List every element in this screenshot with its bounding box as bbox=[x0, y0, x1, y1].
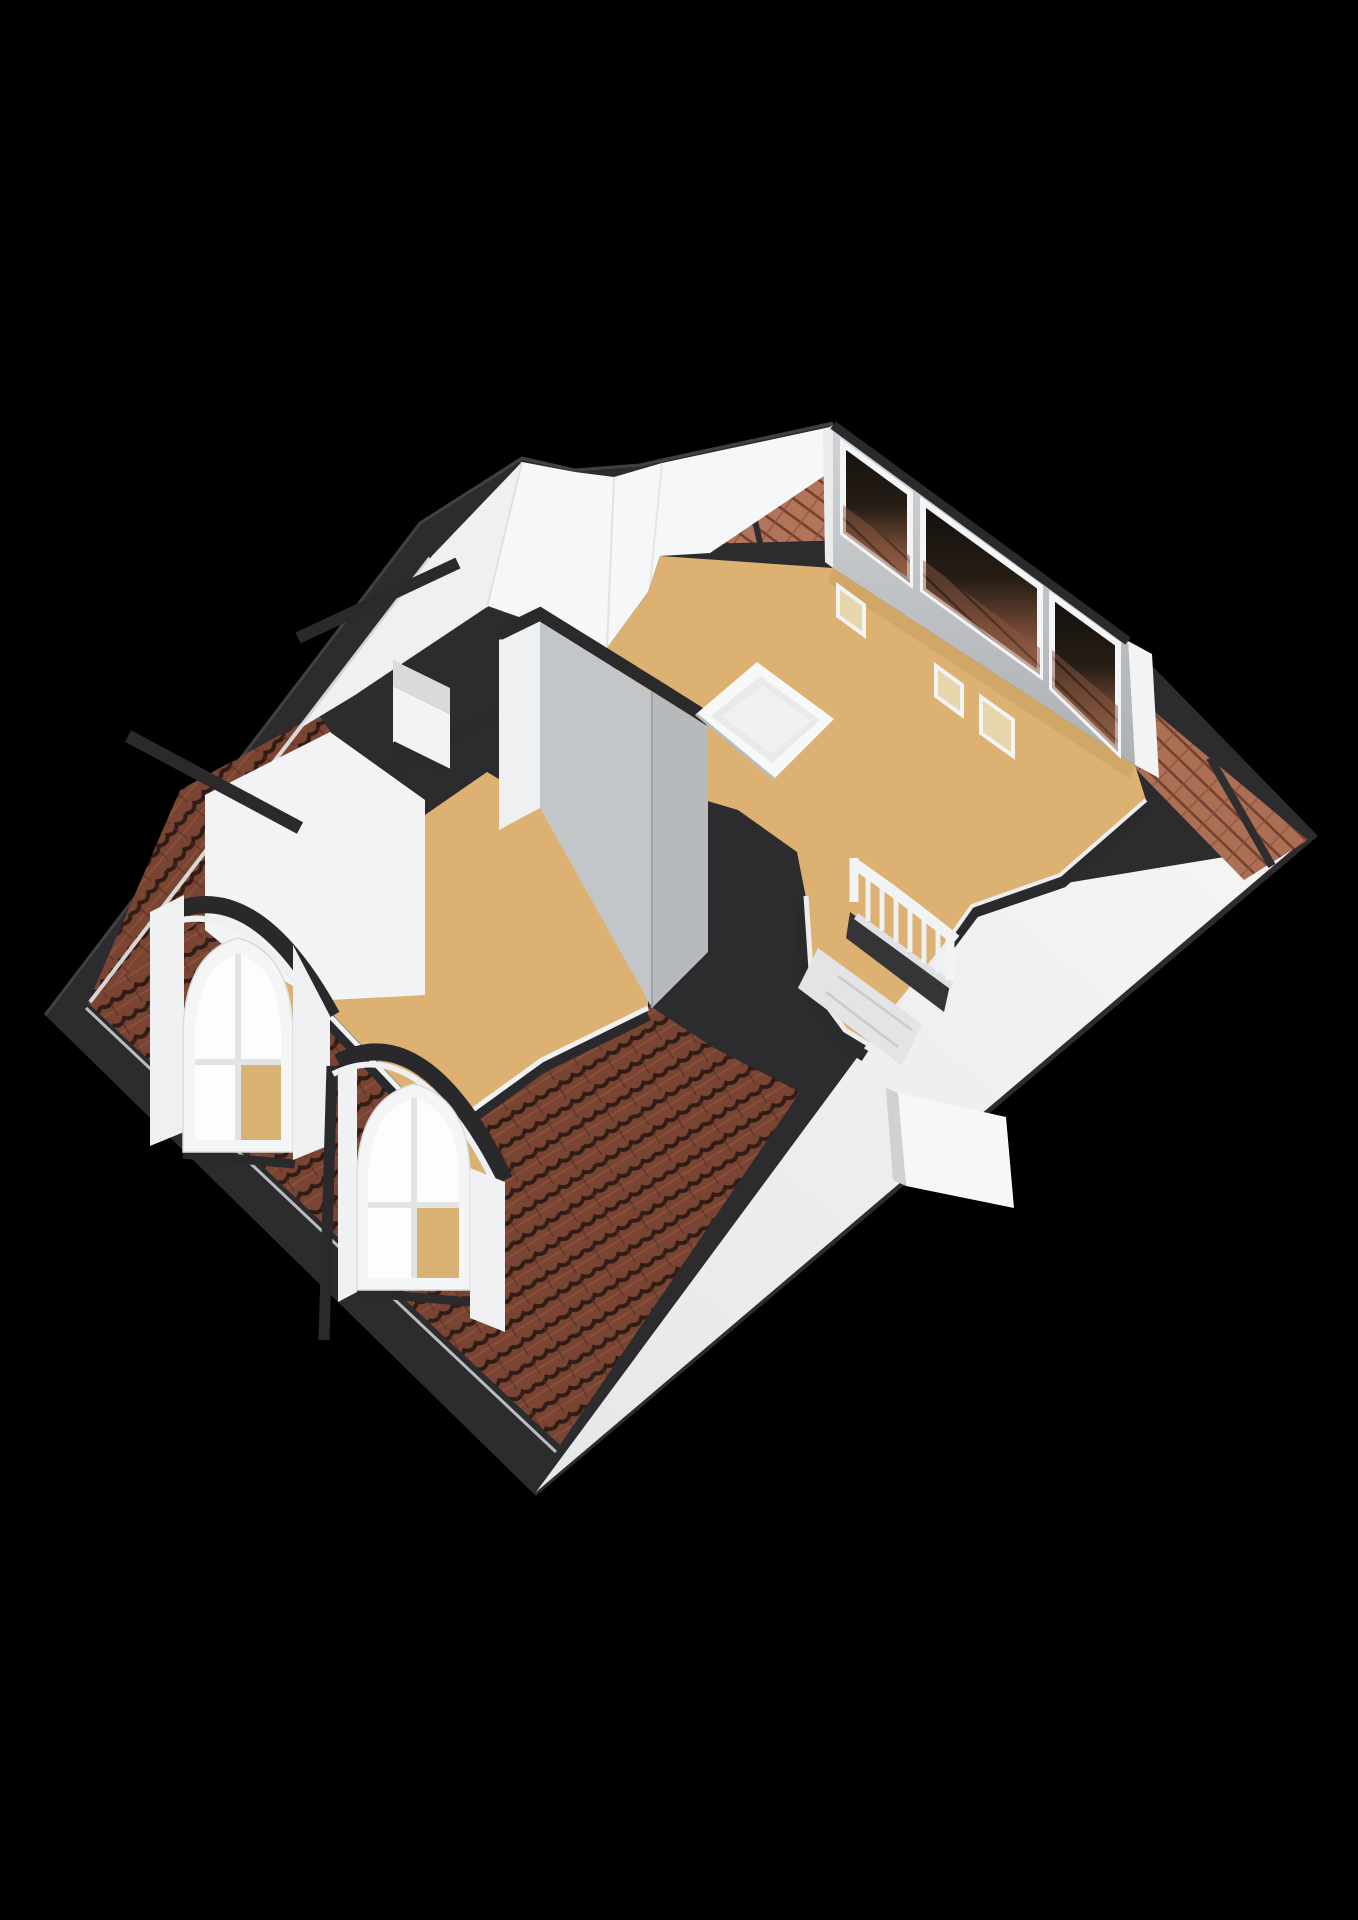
floorplan-viewport bbox=[0, 0, 1358, 1920]
dormer-2-right-cheek bbox=[470, 1168, 505, 1332]
dormer-2-left-edge bbox=[338, 1066, 357, 1302]
dormer-1-pane-lower-right bbox=[241, 1065, 281, 1140]
dormer-2-pane-lower-right bbox=[417, 1208, 459, 1278]
floorplan-3d-view[interactable] bbox=[0, 0, 1358, 1920]
dormer-1-left-cheek bbox=[150, 895, 184, 1146]
divider-wall-white-face bbox=[499, 620, 540, 830]
